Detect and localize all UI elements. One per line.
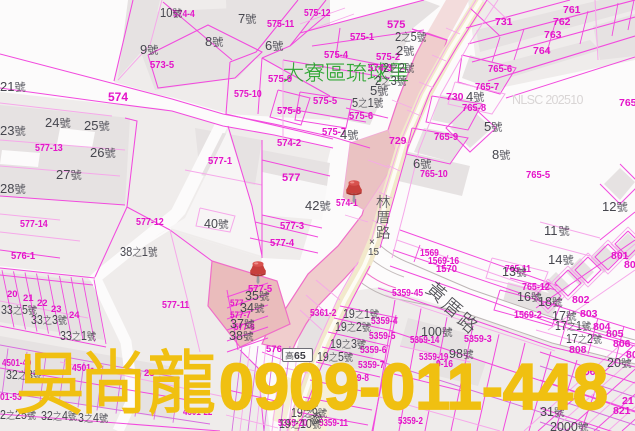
svg-text:765-7: 765-7 — [475, 82, 500, 94]
svg-text:32: 32 — [6, 368, 18, 382]
svg-text:25: 25 — [84, 118, 98, 133]
svg-text:5: 5 — [484, 119, 491, 134]
svg-text:33: 33 — [31, 313, 43, 327]
svg-text:575-9: 575-9 — [268, 74, 293, 86]
svg-text:NLSC 202510: NLSC 202510 — [512, 93, 584, 107]
svg-text:14: 14 — [548, 252, 562, 267]
svg-text:01-53: 01-53 — [0, 391, 22, 402]
svg-text:5: 5 — [22, 303, 28, 317]
svg-text:32: 32 — [41, 409, 53, 423]
svg-text:1: 1 — [368, 95, 374, 110]
svg-text:765-6: 765-6 — [488, 64, 513, 76]
svg-text:2: 2 — [399, 60, 405, 75]
svg-text:764: 764 — [533, 45, 551, 57]
svg-text:4: 4 — [466, 89, 473, 104]
svg-text:16: 16 — [517, 290, 531, 304]
svg-text:38: 38 — [229, 329, 243, 343]
svg-text:28: 28 — [0, 181, 14, 196]
svg-text:576-1: 576-1 — [11, 251, 36, 263]
svg-text:0909-011-448: 0909-011-448 — [219, 350, 608, 423]
svg-text:577-3: 577-3 — [280, 221, 305, 233]
svg-text:33: 33 — [1, 303, 13, 317]
svg-text:20: 20 — [607, 356, 621, 370]
svg-text:6: 6 — [265, 38, 272, 53]
svg-text:7: 7 — [238, 11, 245, 26]
svg-text:729: 729 — [389, 135, 407, 147]
svg-text:577-4: 577-4 — [270, 238, 295, 250]
svg-text:574: 574 — [108, 90, 128, 104]
svg-text:22: 22 — [37, 298, 48, 309]
svg-text:40: 40 — [204, 217, 218, 231]
svg-text:573-5: 573-5 — [150, 60, 175, 72]
svg-text:575-4: 575-4 — [324, 50, 349, 62]
svg-text:15: 15 — [368, 247, 380, 258]
svg-text:19: 19 — [343, 307, 355, 321]
svg-text:18: 18 — [538, 295, 552, 309]
svg-text:575-6: 575-6 — [349, 111, 374, 123]
svg-text:577: 577 — [282, 172, 300, 184]
svg-text:765-8: 765-8 — [462, 103, 487, 115]
svg-text:5359-3: 5359-3 — [464, 333, 492, 345]
svg-text:5: 5 — [352, 95, 358, 110]
svg-text:763: 763 — [544, 29, 562, 41]
svg-text:19: 19 — [335, 320, 347, 334]
svg-text:3: 3 — [78, 411, 84, 425]
svg-text:765: 765 — [619, 97, 635, 109]
svg-text:1: 1 — [142, 244, 148, 259]
svg-text:803: 803 — [580, 308, 598, 320]
svg-text:575-11: 575-11 — [267, 18, 295, 30]
svg-text:577-13: 577-13 — [35, 142, 63, 154]
svg-text:100: 100 — [421, 325, 442, 339]
svg-text:2: 2 — [356, 320, 362, 334]
svg-text:762: 762 — [553, 16, 571, 28]
svg-text:10: 10 — [160, 5, 173, 20]
svg-text:12: 12 — [602, 199, 616, 214]
svg-text:575-5: 575-5 — [313, 96, 338, 108]
svg-text:6: 6 — [413, 156, 420, 171]
svg-text:577-1: 577-1 — [208, 156, 233, 168]
svg-text:3: 3 — [391, 73, 397, 88]
svg-text:1: 1 — [364, 307, 370, 321]
svg-text:4: 4 — [340, 127, 347, 142]
svg-text:23: 23 — [0, 123, 14, 138]
svg-text:2: 2 — [383, 60, 389, 75]
svg-text:17: 17 — [555, 319, 567, 333]
svg-text:577-12: 577-12 — [136, 216, 164, 228]
svg-text:21: 21 — [0, 79, 14, 94]
svg-text:4: 4 — [62, 409, 68, 423]
svg-text:13: 13 — [502, 265, 516, 279]
svg-text:9: 9 — [140, 42, 147, 57]
svg-text:1: 1 — [576, 319, 582, 333]
svg-text:765-9: 765-9 — [434, 132, 459, 144]
svg-text:11: 11 — [544, 223, 558, 238]
svg-text:5359-45: 5359-45 — [392, 287, 423, 298]
svg-text:2: 2 — [395, 29, 401, 44]
svg-text:802: 802 — [572, 294, 590, 306]
svg-text:765-10: 765-10 — [420, 168, 448, 180]
svg-text:575-12: 575-12 — [304, 7, 330, 18]
svg-text:3: 3 — [52, 313, 58, 327]
svg-text:5361-2: 5361-2 — [310, 307, 336, 318]
svg-text:24: 24 — [69, 310, 80, 321]
svg-text:34: 34 — [240, 301, 254, 315]
svg-text:2: 2 — [396, 43, 403, 58]
svg-text:20: 20 — [7, 289, 18, 300]
svg-text:577-14: 577-14 — [20, 218, 48, 230]
svg-text:17: 17 — [566, 332, 578, 346]
svg-text:21: 21 — [622, 395, 634, 407]
svg-text:574-2: 574-2 — [277, 138, 302, 150]
svg-text:33: 33 — [60, 329, 72, 343]
svg-text:1: 1 — [81, 329, 87, 343]
svg-text:24: 24 — [45, 115, 59, 130]
svg-text:38: 38 — [120, 244, 133, 259]
svg-text:8: 8 — [492, 147, 499, 162]
svg-text:1570: 1570 — [436, 264, 457, 276]
svg-text:27: 27 — [56, 167, 70, 182]
svg-text:2: 2 — [587, 332, 593, 346]
svg-text:26: 26 — [90, 145, 104, 160]
svg-text:8: 8 — [205, 34, 212, 49]
svg-text:761: 761 — [563, 4, 581, 16]
svg-text:5359-5: 5359-5 — [369, 330, 395, 341]
svg-text:730: 730 — [446, 91, 464, 103]
svg-text:1569-2: 1569-2 — [514, 309, 542, 321]
svg-text:575-10: 575-10 — [234, 88, 262, 100]
svg-text:731: 731 — [495, 16, 513, 28]
svg-text:575-1: 575-1 — [350, 32, 375, 44]
svg-text:575-8: 575-8 — [277, 106, 302, 118]
svg-text:42: 42 — [305, 198, 319, 213]
svg-text:5: 5 — [411, 29, 417, 44]
svg-text:577-11: 577-11 — [162, 299, 190, 311]
svg-text:765-5: 765-5 — [526, 170, 551, 182]
svg-text:800: 800 — [624, 259, 635, 271]
svg-text:4: 4 — [93, 411, 99, 425]
svg-text:2: 2 — [0, 408, 6, 422]
